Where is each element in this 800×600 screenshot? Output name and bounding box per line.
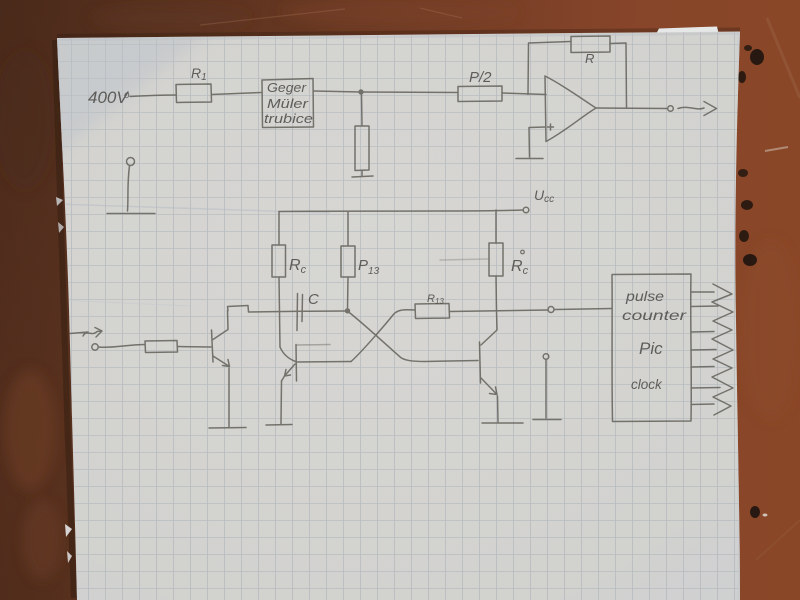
svg-text:counter: counter <box>622 307 688 323</box>
svg-text:trubice: trubice <box>264 112 313 126</box>
svg-text:pulse: pulse <box>625 288 664 304</box>
svg-text:P/2: P/2 <box>469 69 492 86</box>
svg-text:clock: clock <box>631 377 663 392</box>
svg-text:o: o <box>124 90 130 101</box>
svg-text:Geger: Geger <box>267 81 307 95</box>
svg-text:Pic: Pic <box>639 339 663 358</box>
svg-text:C: C <box>308 291 319 308</box>
svg-text:Müler: Müler <box>267 96 309 111</box>
svg-text:R: R <box>585 51 594 66</box>
